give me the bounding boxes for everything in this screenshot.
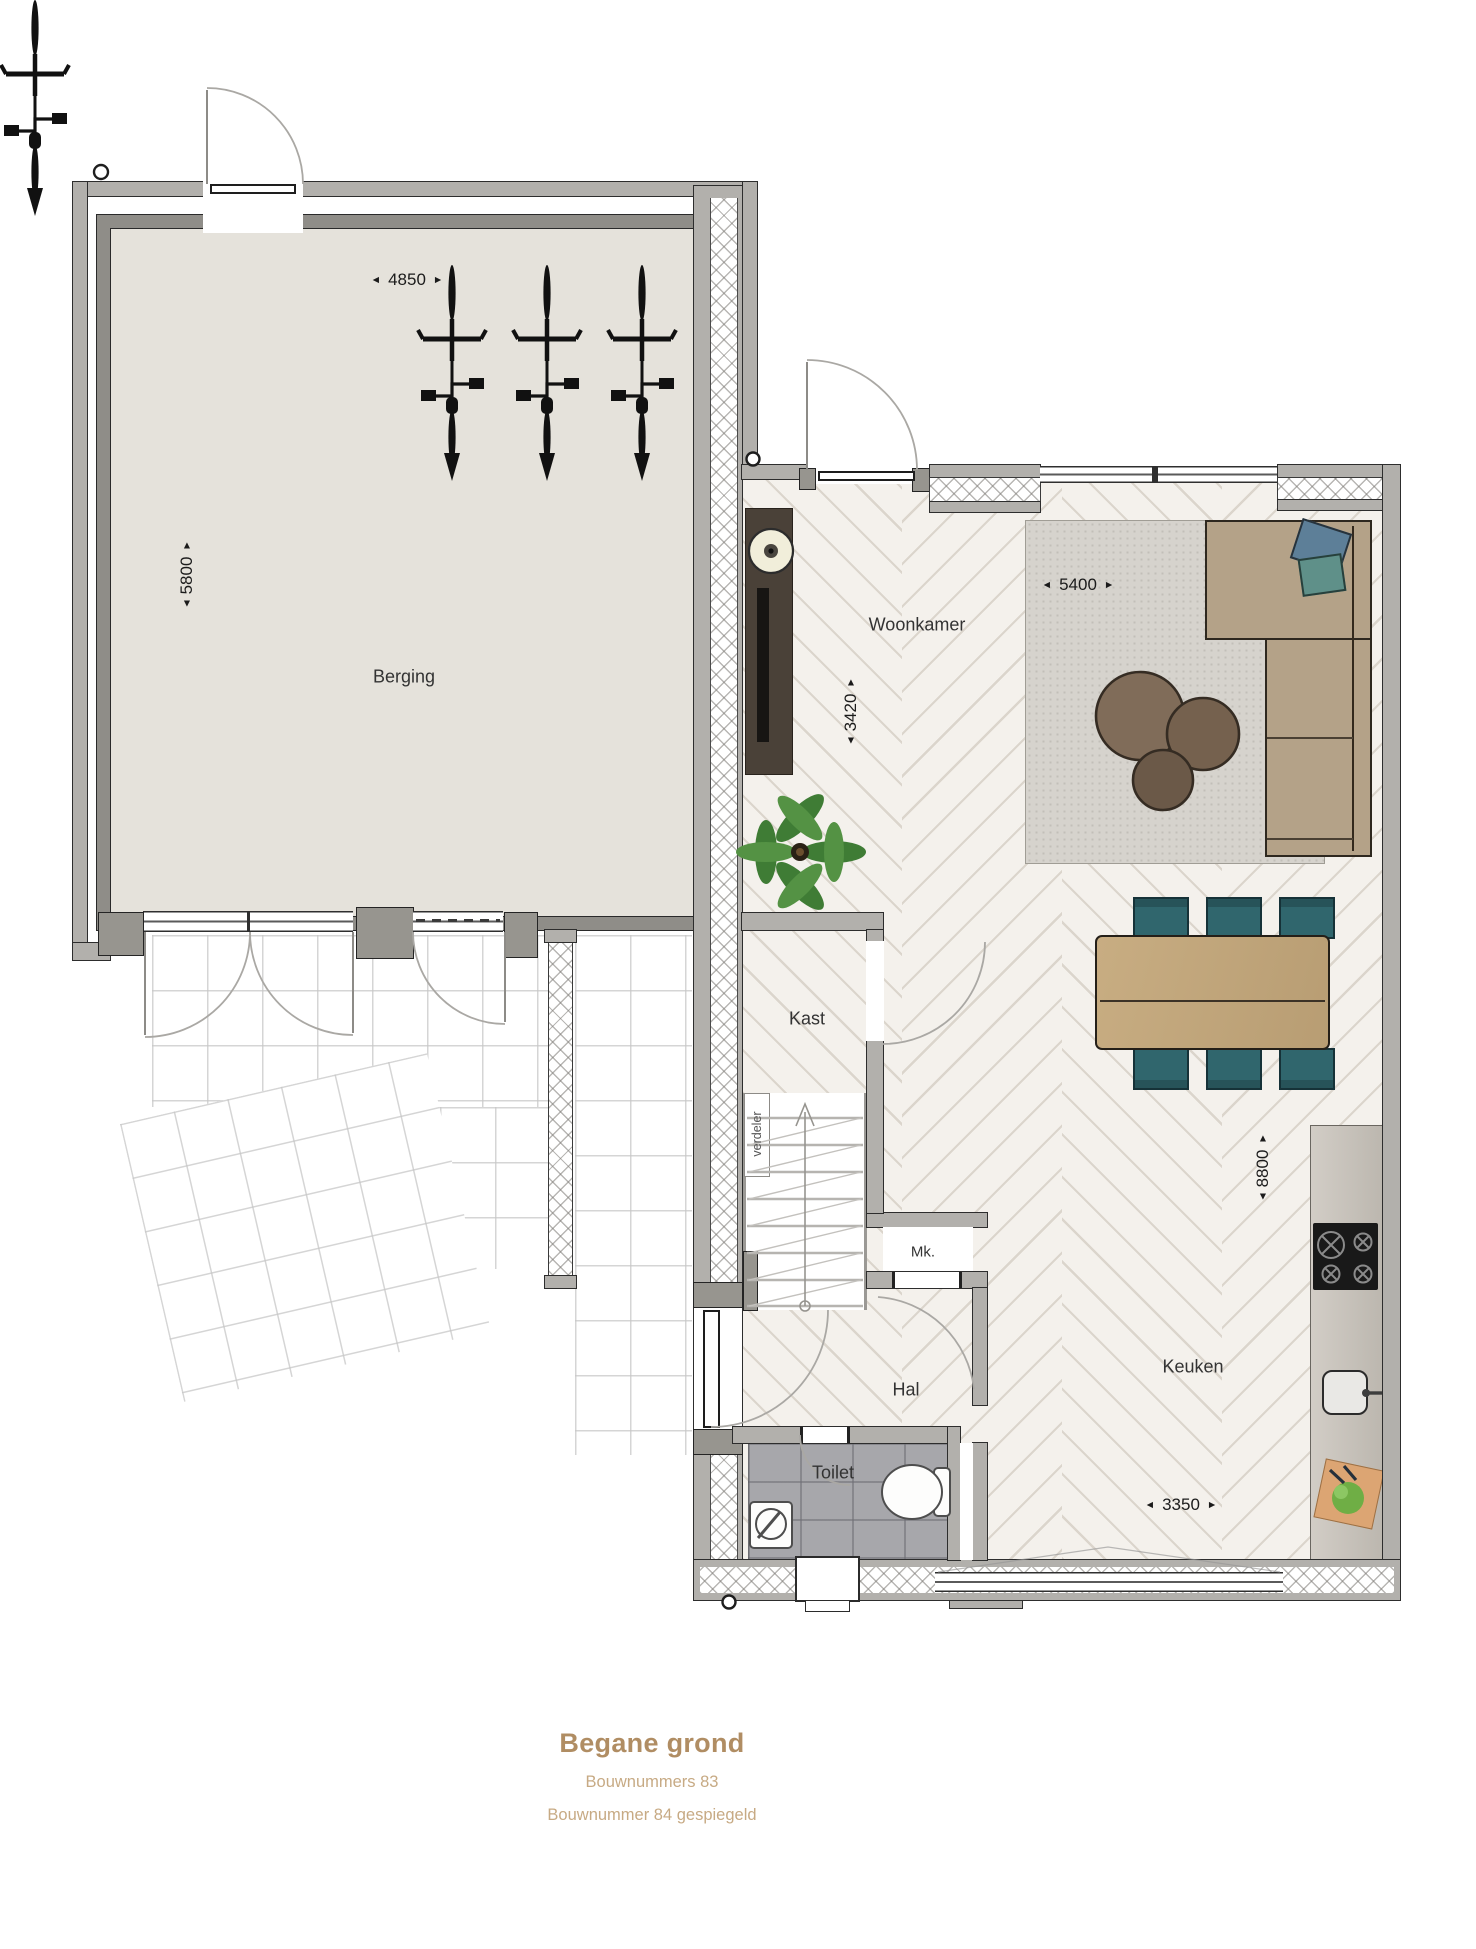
dimension-woonkamer-depth: ▲ 3420 ▼ xyxy=(841,678,861,747)
room-label-woonkamer: Woonkamer xyxy=(869,615,966,636)
dim-arrow-down-icon: ▼ xyxy=(182,599,192,610)
dimension-berging-depth: ▲ 5800 ▼ xyxy=(177,541,197,610)
plan-linework xyxy=(0,0,1476,1949)
cooktop-burners xyxy=(1318,1232,1372,1283)
dim-arrow-right-icon: ► xyxy=(433,275,443,286)
dimension-woonkamer-width: ◄ 5400 ► xyxy=(1042,575,1115,595)
room-label-keuken: Keuken xyxy=(1162,1357,1223,1378)
dimension-berging-width: ◄ 4850 ► xyxy=(371,270,444,290)
wash-basin xyxy=(750,1502,792,1548)
berging-door-arc xyxy=(207,88,303,184)
dim-arrow-up-icon: ▲ xyxy=(1258,1134,1268,1145)
dim-arrow-right-icon: ► xyxy=(1207,1500,1217,1511)
floorplan-canvas: Berging Woonkamer Kast Mk. Hal Toilet Ke… xyxy=(0,0,1476,1949)
page-subtitle-1: Bouwnummers 83 xyxy=(547,1773,756,1792)
dim-arrow-down-icon: ▼ xyxy=(846,736,856,747)
dimension-keuken-width: ◄ 3350 ► xyxy=(1145,1495,1218,1515)
room-label-hal: Hal xyxy=(892,1380,919,1401)
speaker xyxy=(749,529,793,573)
dimension-house-depth: ▲ 8800 ▼ xyxy=(1253,1134,1273,1203)
dimension-value: 5400 xyxy=(1059,575,1097,595)
dim-arrow-up-icon: ▲ xyxy=(846,678,856,689)
page-title: Begane grond xyxy=(547,1728,756,1759)
room-label-toilet: Toilet xyxy=(812,1463,854,1484)
dimension-value: 5800 xyxy=(177,556,197,594)
dim-arrow-left-icon: ◄ xyxy=(1145,1500,1155,1511)
coffee-tables xyxy=(1096,672,1239,810)
dimension-value: 8800 xyxy=(1253,1149,1273,1187)
dim-arrow-left-icon: ◄ xyxy=(371,275,381,286)
toilet-bowl xyxy=(882,1465,950,1519)
dimension-value: 4850 xyxy=(388,270,426,290)
corridor-door-opening xyxy=(866,941,884,1041)
room-label-mk: Mk. xyxy=(911,1244,935,1261)
dimension-value: 3350 xyxy=(1162,1495,1200,1515)
sink-faucet xyxy=(1362,1389,1382,1397)
plant xyxy=(736,788,866,917)
front-door-arc xyxy=(807,360,917,470)
page-subtitle-2: Bouwnummer 84 gespiegeld xyxy=(547,1806,756,1825)
dim-arrow-down-icon: ▼ xyxy=(1258,1192,1268,1203)
dim-arrow-left-icon: ◄ xyxy=(1042,580,1052,591)
dim-arrow-up-icon: ▲ xyxy=(182,541,192,552)
room-label-verdeler: verdeler xyxy=(750,1111,764,1156)
dimension-value: 3420 xyxy=(841,693,861,731)
room-label-kast: Kast xyxy=(789,1009,825,1030)
window-opener-lines xyxy=(938,1547,1280,1572)
room-label-berging: Berging xyxy=(373,667,435,688)
cutting-board-contents xyxy=(1330,1466,1364,1514)
dim-arrow-right-icon: ► xyxy=(1104,580,1114,591)
